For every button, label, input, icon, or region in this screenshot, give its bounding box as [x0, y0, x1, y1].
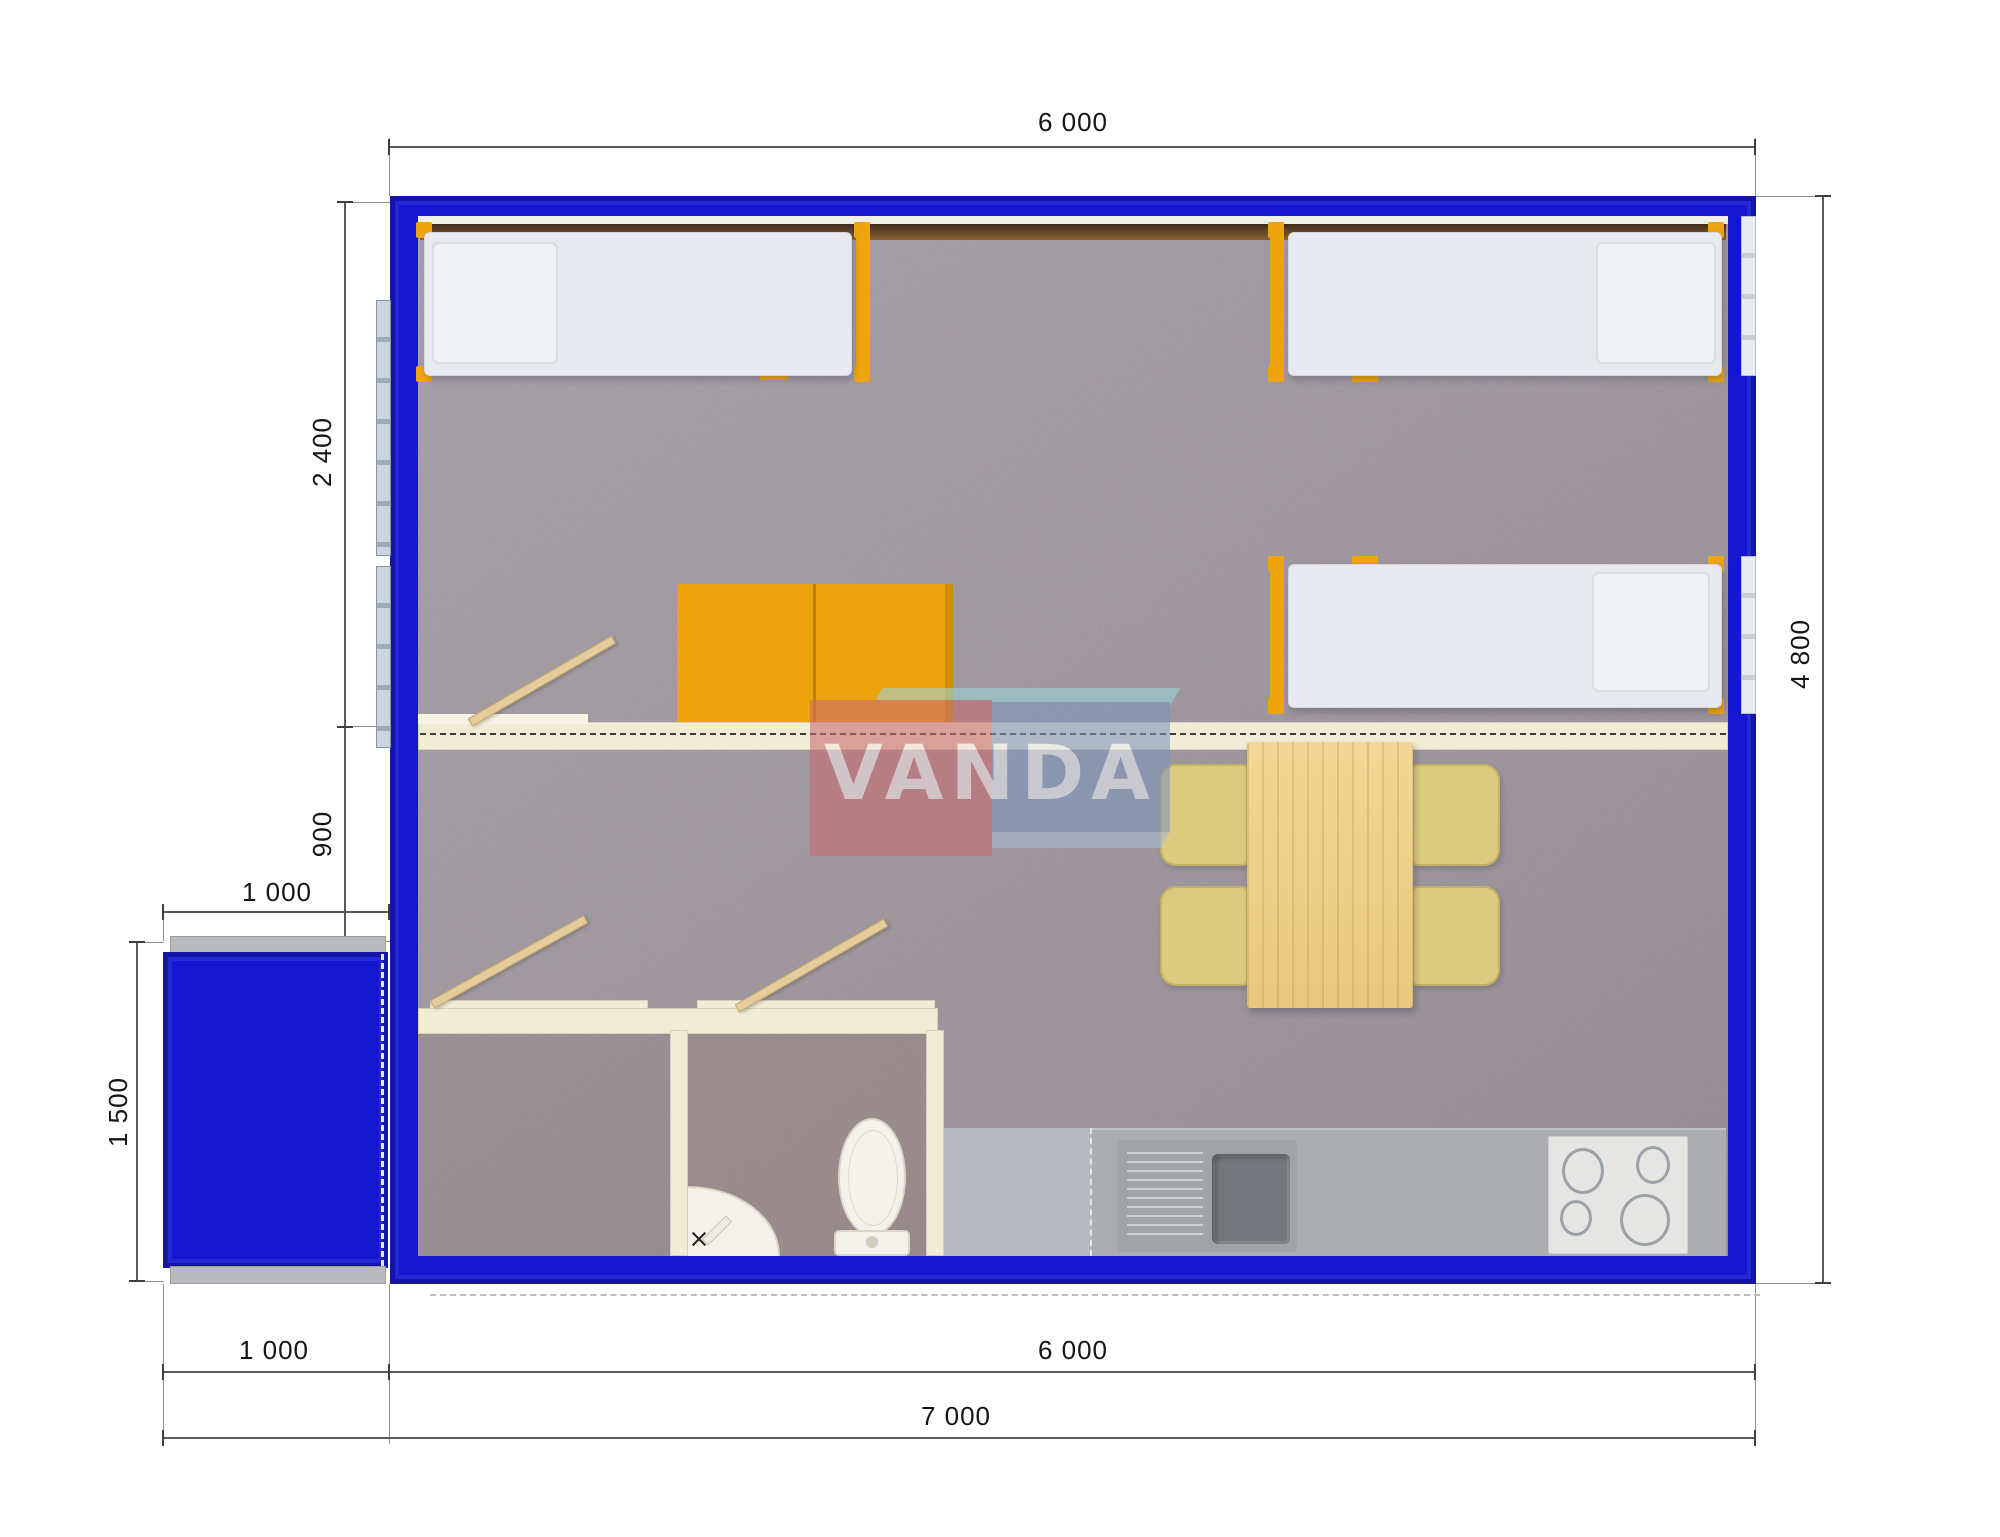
bed2-post [1268, 366, 1284, 382]
dim-label-porch-depth: 1 500 [102, 1032, 134, 1192]
bed3-pillow [1592, 572, 1710, 692]
tick [1815, 1282, 1831, 1284]
corner-sink [688, 1186, 780, 1256]
kitchen-appliance-panel [944, 1128, 1092, 1256]
toilet-flush-button [866, 1236, 878, 1248]
bed2-head-rail [1270, 222, 1284, 380]
toilet-bowl-inner [848, 1130, 898, 1226]
bed2-post [1268, 222, 1284, 238]
dining-chair [1160, 764, 1248, 866]
dim-line-top-6000 [390, 146, 1756, 148]
bed1-foot-rail [856, 222, 870, 380]
tick [162, 904, 164, 920]
window-right-lower [1741, 556, 1756, 714]
tick [129, 941, 145, 943]
eave-dashed-line [430, 1294, 1760, 1296]
floor-plan-canvas: 6 000 2 400 900 1 000 1 500 4 800 1 000 … [0, 0, 2000, 1537]
dim-label-bottom-main-width: 6 000 [993, 1334, 1153, 1366]
dim-label-porch-width: 1 000 [197, 876, 357, 908]
dining-chair [1412, 886, 1500, 986]
tick [388, 1364, 390, 1380]
tick [162, 1364, 164, 1380]
stove-burner [1560, 1200, 1592, 1236]
dining-table [1247, 742, 1413, 1008]
bathroom-wall-divider [670, 1030, 688, 1256]
bed2-pillow [1596, 242, 1716, 364]
dim-line-right-4800 [1822, 196, 1824, 1284]
window-left-lower [376, 566, 391, 748]
porch-deck [163, 952, 388, 1268]
bed3-post [1268, 698, 1284, 714]
dim-label-overall-depth: 4 800 [1784, 574, 1816, 734]
dim-label-bedroom-depth: 2 400 [306, 372, 338, 532]
wardrobe-door-split [813, 584, 816, 726]
dim-line-left [344, 202, 346, 942]
top-wall-trim [418, 216, 1728, 224]
partition-wall-offset [418, 714, 588, 724]
wc-room [688, 1034, 926, 1256]
tick [162, 1430, 164, 1446]
tick [337, 201, 353, 203]
porch-door-dashed-line [381, 954, 384, 1266]
dining-chair [1160, 886, 1248, 986]
sink-drainboard [1127, 1152, 1203, 1242]
tick [129, 1280, 145, 1282]
partition-wall [418, 722, 1728, 750]
tick [1754, 1364, 1756, 1380]
bed1-post [854, 366, 870, 382]
bed1-post [854, 222, 870, 238]
stove-burner [1562, 1148, 1604, 1194]
dim-line-porch-1000 [163, 911, 390, 913]
dim-line-bottom-7000 [163, 1437, 1756, 1439]
dining-chair [1412, 764, 1500, 866]
bathroom-door-jamb-right [697, 1000, 935, 1009]
wc-wall-right [926, 1030, 944, 1256]
dim-label-top-width: 6 000 [993, 106, 1153, 138]
porch-step-bottom [170, 1266, 386, 1284]
tick [1754, 139, 1756, 155]
tick [1754, 1430, 1756, 1446]
dim-line-bottom-split [163, 1371, 1756, 1373]
bed3-post [1268, 556, 1284, 572]
tick [388, 139, 390, 155]
sink-basin [1212, 1154, 1290, 1244]
stove-burner [1620, 1194, 1670, 1246]
bed1-pillow [432, 242, 558, 364]
wetroom-floor-tint [418, 1034, 670, 1256]
dim-label-overall-width: 7 000 [876, 1400, 1036, 1432]
tick [1815, 195, 1831, 197]
partition-dashed-centerline [420, 733, 1726, 735]
window-left-upper [376, 300, 391, 556]
bed3-head-rail [1270, 556, 1284, 712]
bathroom-door-jamb-left [430, 1000, 648, 1009]
window-right-upper [1741, 216, 1756, 376]
dim-label-bottom-porch-width: 1 000 [194, 1334, 354, 1366]
stove-burner [1636, 1146, 1670, 1184]
tick [337, 726, 353, 728]
dim-line-porch-1500 [136, 942, 138, 1282]
